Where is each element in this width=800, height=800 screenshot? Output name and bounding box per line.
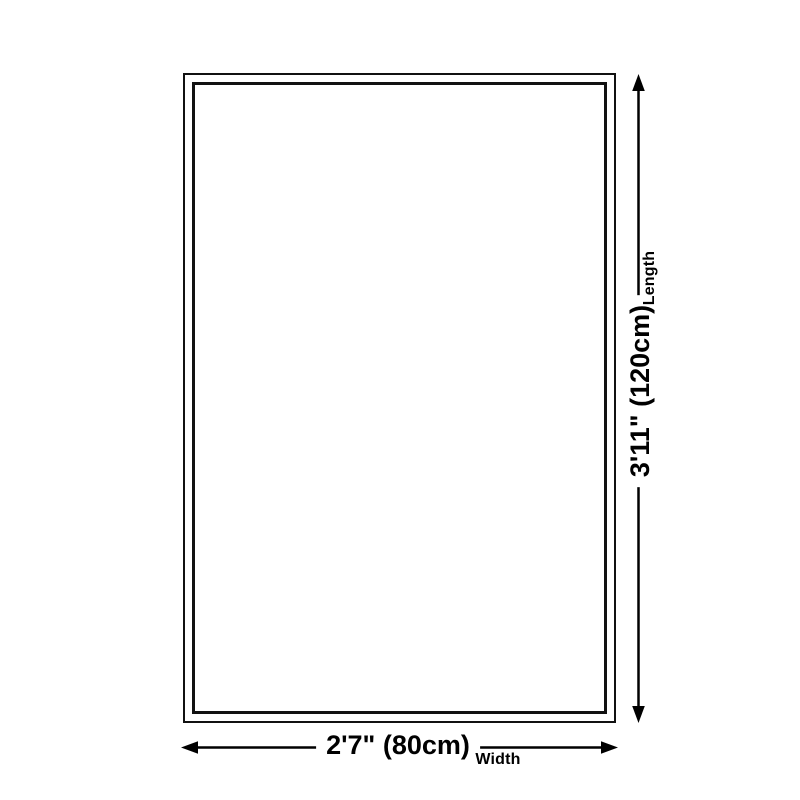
product-outline-inner (192, 82, 607, 714)
length-value-label: 3'11" (120cm) (626, 295, 656, 487)
width-caption-label: Width (475, 751, 520, 769)
dimension-diagram: 2'7" (80cm) Width 3'11" (120cm) Length (0, 0, 800, 800)
width-value-label: 2'7" (80cm) (316, 731, 480, 761)
product-outline-outer (183, 73, 616, 723)
length-caption-label: Length (641, 251, 659, 306)
